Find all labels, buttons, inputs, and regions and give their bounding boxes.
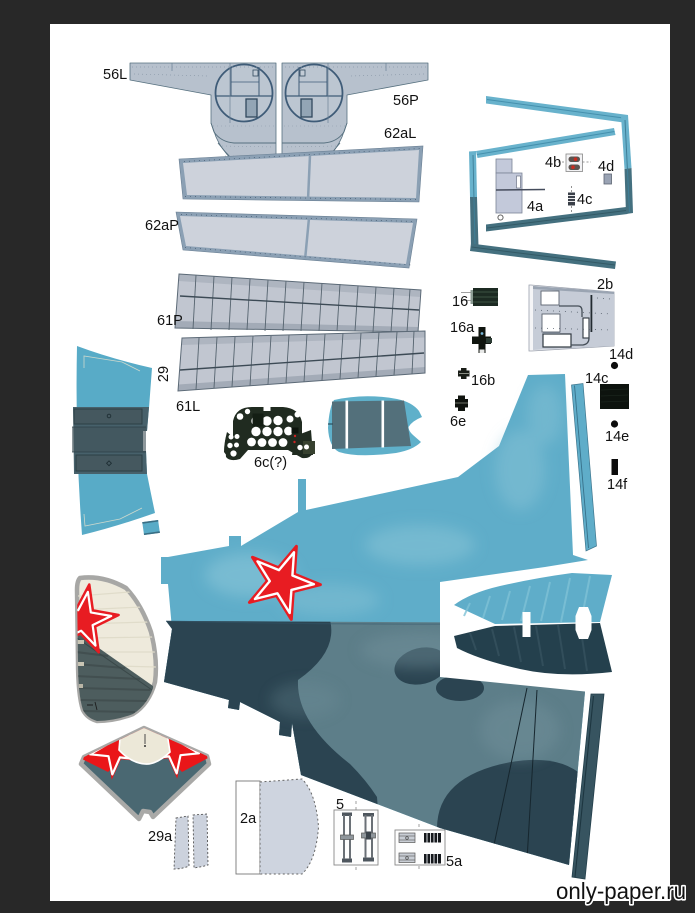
svg-text:2a: 2a xyxy=(240,811,257,827)
svg-text:14c: 14c xyxy=(585,371,608,387)
svg-text:62aP: 62aP xyxy=(145,218,179,234)
svg-text:14d: 14d xyxy=(609,347,633,363)
svg-text:2b: 2b xyxy=(597,277,613,293)
svg-text:14f: 14f xyxy=(607,477,628,493)
svg-text:4c: 4c xyxy=(577,192,592,208)
svg-text:6e: 6e xyxy=(450,414,466,430)
svg-text:4b: 4b xyxy=(545,155,561,171)
svg-text:16a: 16a xyxy=(450,320,475,336)
svg-text:5a: 5a xyxy=(446,854,463,870)
svg-text:62aL: 62aL xyxy=(384,126,416,142)
svg-text:29a: 29a xyxy=(148,829,173,845)
svg-text:61L: 61L xyxy=(176,399,200,415)
svg-text:4d: 4d xyxy=(598,159,614,175)
svg-text:56P: 56P xyxy=(393,93,419,109)
svg-text:56L: 56L xyxy=(103,67,127,83)
svg-text:6c(?): 6c(?) xyxy=(254,455,287,471)
svg-text:4a: 4a xyxy=(527,199,544,215)
svg-text:16: 16 xyxy=(452,294,468,310)
svg-text:29: 29 xyxy=(156,366,172,382)
svg-text:14e: 14e xyxy=(605,429,629,445)
svg-text:5: 5 xyxy=(336,797,344,813)
svg-text:16b: 16b xyxy=(471,373,495,389)
svg-text:only-paper.ru: only-paper.ru xyxy=(556,878,686,904)
svg-text:61P: 61P xyxy=(157,313,183,329)
